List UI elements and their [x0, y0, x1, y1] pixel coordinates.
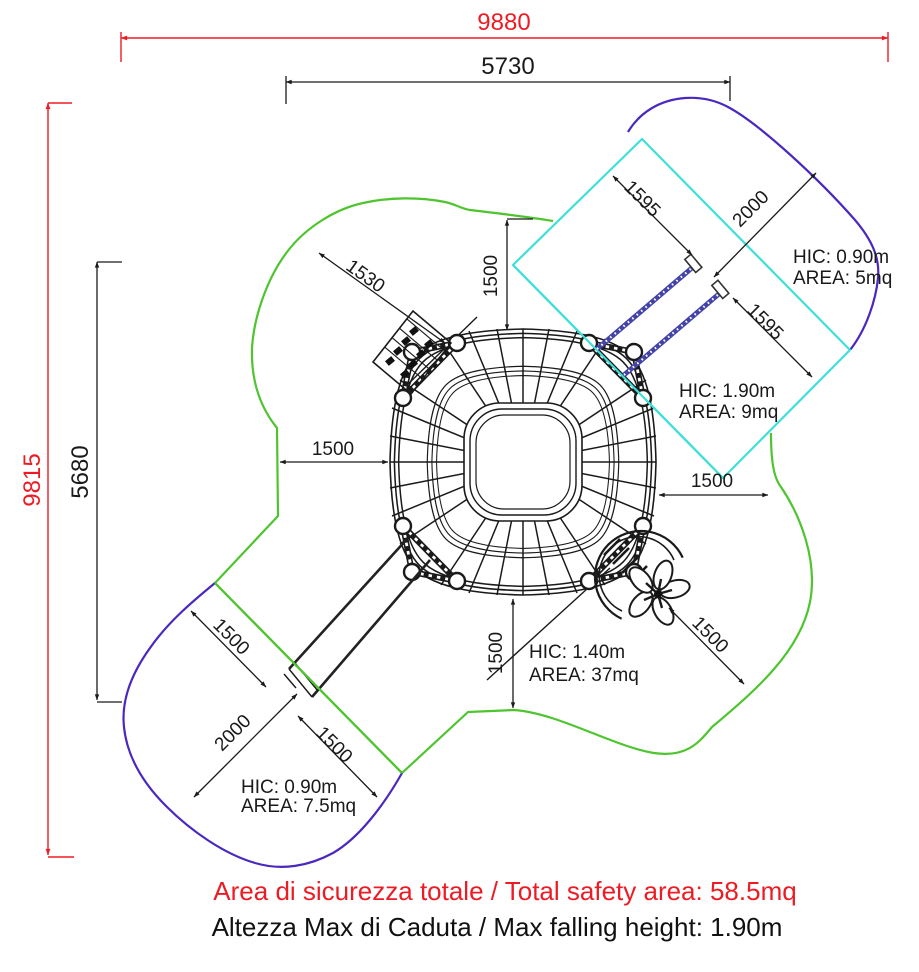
hic-ne-outer-value: HIC: 0.90m: [793, 247, 889, 268]
dim-east-clearance: 1500: [659, 471, 768, 495]
dim-south-clearance: 1500: [486, 599, 513, 708]
area-central-value: AREA: 37mq: [529, 665, 639, 686]
hic-label-sw: HIC: 0.90m AREA: 7.5mq: [241, 777, 356, 817]
corner-bracket-sw: [395, 518, 465, 589]
hic-label-ne-outer: HIC: 0.90m AREA: 5mq: [793, 247, 892, 289]
hic-label-central: HIC: 1.40m AREA: 37mq: [529, 642, 639, 686]
hic-ne-inner-value: HIC: 1.90m: [679, 381, 775, 402]
dim-left-height-value: 5680: [67, 445, 94, 498]
hic-label-ne-inner: HIC: 1.90m AREA: 9mq: [679, 381, 778, 423]
dim-ne-rail-upper-value: 1595: [620, 177, 665, 222]
green-chord-overlay: [215, 583, 402, 773]
dim-upper-width: 5730: [286, 53, 730, 104]
plan-canvas: 9880 9815 5730 5680 1500 1500 1500 1500 …: [0, 0, 919, 972]
dim-overall-height: 9815: [19, 103, 74, 857]
flower-petals: [625, 558, 692, 628]
dim-ne-rail-lower: 1595: [733, 298, 812, 377]
dim-left-height: 5680: [67, 262, 122, 702]
dim-ne-zone-width-value: 2000: [729, 187, 774, 232]
dim-south-clearance-value: 1500: [486, 632, 507, 674]
hic-central-value: HIC: 1.40m: [529, 642, 625, 663]
dim-overall-height-value: 9815: [19, 453, 46, 506]
dim-sw-clearance-lower-value: 1500: [312, 723, 357, 768]
dim-ne-rail-lower-value: 1595: [743, 300, 788, 345]
dim-north-clearance-value: 1500: [481, 255, 502, 297]
safety-area-plan-drawing: 9880 9815 5730 5680 1500 1500 1500 1500 …: [0, 0, 919, 972]
area-sw-value: AREA: 7.5mq: [241, 796, 356, 817]
play-structure-ring: [390, 317, 656, 680]
dim-se-flower-clearance: 1500: [669, 608, 744, 684]
dim-sw-zone-width-value: 2000: [211, 711, 256, 756]
area-ne-inner-value: AREA: 9mq: [679, 402, 778, 423]
dim-east-clearance-value: 1500: [691, 471, 733, 492]
dim-north-clearance: 1500: [481, 219, 533, 330]
dim-stairs-clearance-value: 1530: [342, 256, 389, 298]
dim-overall-width-value: 9880: [477, 9, 530, 36]
max-falling-height-caption: Altezza Max di Caduta / Max falling heig…: [212, 912, 783, 942]
total-safety-area-caption: Area di sicurezza totale / Total safety …: [213, 876, 796, 906]
dim-upper-width-value: 5730: [481, 53, 534, 80]
hic-sw-value: HIC: 0.90m: [241, 777, 337, 798]
dim-stairs-clearance: 1530: [319, 253, 445, 343]
dim-west-clearance-value: 1500: [312, 439, 354, 460]
dim-se-flower-clearance-value: 1500: [688, 613, 733, 658]
safety-area-purple-outline-sw: [124, 583, 402, 867]
area-ne-outer-value: AREA: 5mq: [793, 268, 892, 289]
ring-inner-hole: [464, 403, 582, 521]
dim-ne-rail-upper: 1595: [613, 176, 692, 255]
dim-west-clearance: 1500: [280, 439, 388, 462]
dim-sw-clearance-upper-value: 1500: [209, 615, 254, 660]
